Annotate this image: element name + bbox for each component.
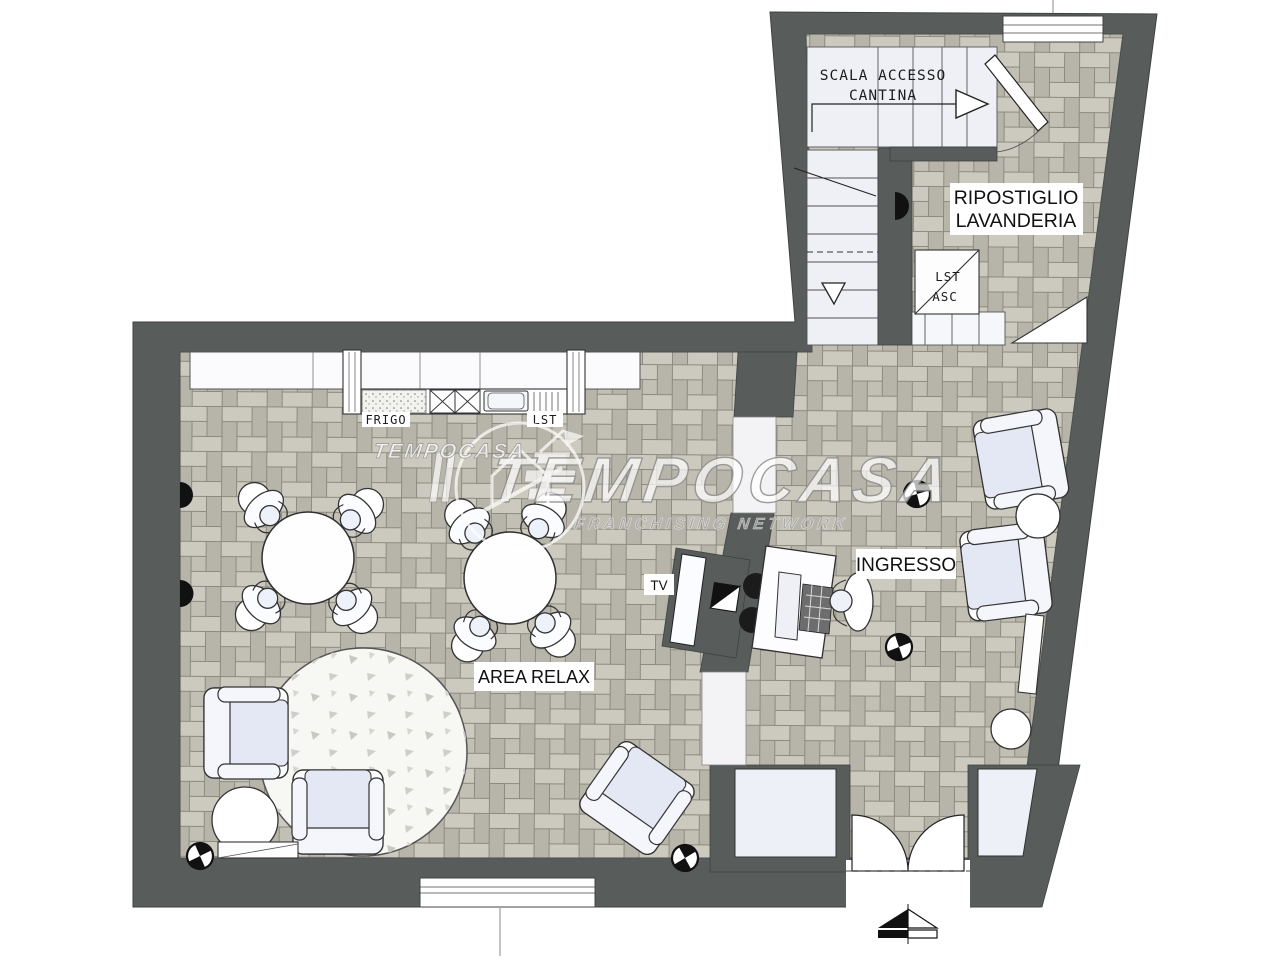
armchair: [972, 406, 1071, 511]
fridge-zone: [362, 390, 426, 413]
bottom-window: [420, 878, 595, 907]
relax-label: AREA RELAX: [478, 667, 590, 687]
armchair: [292, 770, 384, 854]
tv-label: TV: [650, 578, 667, 593]
stairs-label-line1: SCALA ACCESSO: [820, 68, 947, 84]
keyboard-icon: [799, 584, 833, 634]
wall-niche-bottom: [735, 769, 836, 857]
hob-icon: [430, 390, 480, 413]
storage-label-line2: LAVANDERIA: [956, 210, 1077, 232]
tall-cabinet: [343, 350, 361, 414]
floor-plan-page: FRIGO LST TV: [0, 0, 1280, 960]
entrance-label: INGRESSO: [856, 555, 956, 576]
side-table: [1016, 494, 1060, 538]
partition-top-block: [734, 352, 797, 417]
storage-label-line1: RIPOSTIGLIO: [954, 187, 1079, 209]
bench: [218, 842, 298, 858]
fridge-label: FRIGO: [365, 413, 406, 427]
watermark-brand-small: TEMPOCASA: [372, 440, 527, 463]
armchair: [204, 687, 288, 779]
wall-symbol: [710, 582, 740, 612]
watermark-tagline: FRANCHISING NETWORK: [573, 515, 850, 533]
side-table: [991, 709, 1031, 749]
lift-label-line1: LST: [935, 269, 961, 284]
top-window: [1003, 16, 1103, 42]
stair-side-wall: [878, 148, 912, 345]
entrance-arrow: [878, 904, 937, 944]
watermark-brand: TEMPOCASA: [486, 444, 959, 516]
landing-steps: [897, 312, 1005, 345]
staircase-lower: [794, 150, 878, 345]
lift-box: LST ASC: [915, 250, 979, 314]
stairs-label-line2: CANTINA: [849, 88, 917, 104]
round-table: [262, 512, 354, 604]
reception-desk: [752, 546, 836, 658]
tall-cabinet: [567, 350, 585, 414]
monitor-icon: [775, 572, 801, 640]
stair-bottom-wall: [890, 147, 997, 161]
lift-label-line2: ASC: [932, 289, 958, 304]
floor-plan-drawing: FRIGO LST TV: [0, 0, 1280, 960]
